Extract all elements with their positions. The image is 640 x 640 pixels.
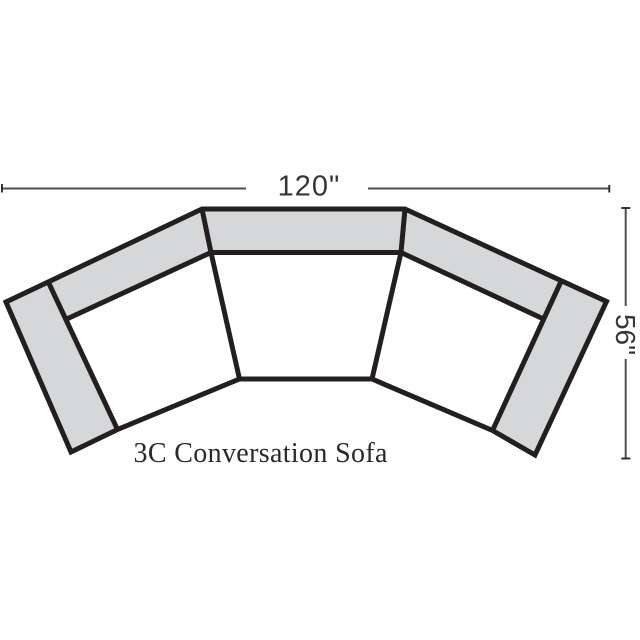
svg-text:3C Conversation Sofa: 3C Conversation Sofa (134, 438, 389, 469)
svg-text:56": 56" (610, 314, 640, 355)
svg-text:120": 120" (278, 171, 341, 203)
